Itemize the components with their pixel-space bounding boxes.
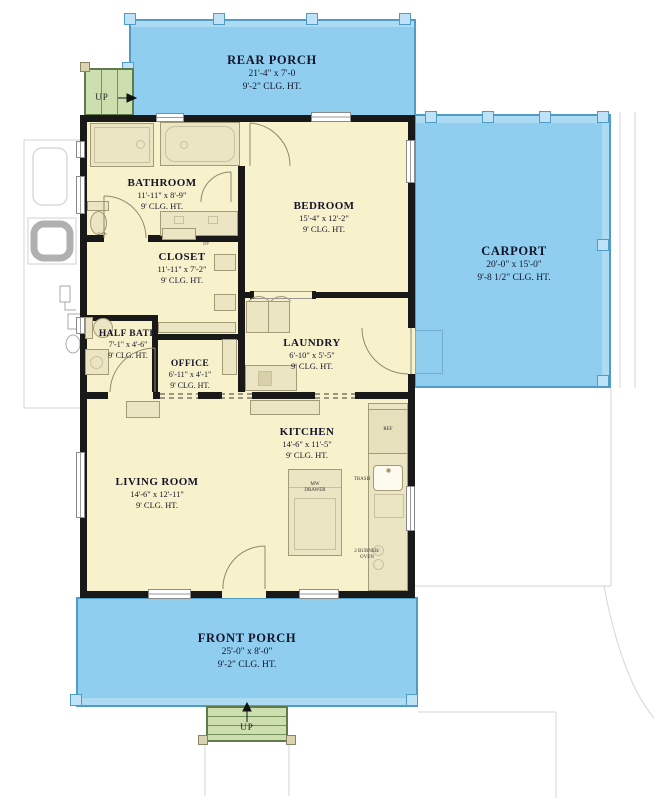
room-dims: 20'-0" x 15'-0" [477, 259, 550, 271]
office-desk [222, 339, 237, 375]
carport-post [425, 111, 437, 123]
window [156, 113, 184, 122]
window [76, 452, 85, 518]
room-name: BATHROOM [128, 176, 197, 190]
rear-stairs-post [80, 62, 90, 72]
faucet [386, 468, 391, 473]
trash-label: TRASH [345, 477, 379, 483]
room-clg: 9' CLG. HT. [283, 361, 340, 372]
room-label-kitchen: KITCHEN 14'-6" x 11'-5" 9' CLG. HT. [280, 425, 335, 461]
room-label-bedroom: BEDROOM 15'-4" x 12'-2" 9' CLG. HT. [294, 199, 355, 235]
mw-line2: DRAWER [290, 488, 340, 494]
porch-post [70, 694, 82, 706]
lumber-label: 2 x 6 [88, 231, 116, 236]
carport-beam-right [602, 116, 609, 386]
room-dims: 25'-0" x 8'-0" [198, 646, 296, 658]
wall-segment [355, 392, 408, 399]
room-clg: 9'-8 1/2" CLG. HT. [477, 272, 550, 284]
closet-shelf [158, 322, 236, 333]
room-name: LAUNDRY [283, 336, 340, 350]
room-name: REAR PORCH [227, 52, 317, 68]
front-stairs-post [286, 735, 296, 745]
wall-segment [87, 392, 108, 399]
opening-jamb [250, 291, 254, 299]
room-dims: 21'-4" x 7'-0 [227, 68, 317, 80]
room-name: KITCHEN [280, 425, 335, 439]
half-bath-door-opening [108, 392, 153, 399]
carport-beam-top [416, 116, 609, 123]
toilet-tank [85, 317, 93, 339]
room-clg: 9'-2" CLG. HT. [227, 81, 317, 93]
room-label-half-bath: HALF BATH 7'-1" x 4'-6" 9' CLG. HT. [99, 328, 157, 361]
wall-segment [153, 392, 160, 399]
room-label-bathroom: BATHROOM 11'-11" x 8'-9" 9' CLG. HT. [128, 176, 197, 212]
wall-segment [238, 166, 245, 392]
burner-oven-label: 2 BURNER/ OVEN [343, 549, 391, 561]
room-dims: 6'-10" x 5'-5" [283, 350, 340, 361]
wall-segment [252, 392, 315, 399]
room-label-office: OFFICE 6'-11" x 4'-1" 9' CLG. HT. [169, 358, 211, 391]
porch-post [124, 13, 136, 25]
dp-label: DP [198, 241, 214, 246]
cased-opening [252, 291, 316, 299]
mw-drawer-label: MW DRAWER [290, 482, 340, 494]
carport-post [597, 239, 609, 251]
window [311, 112, 351, 122]
room-label-laundry: LAUNDRY 6'-10" x 5'-5" 9' CLG. HT. [283, 336, 340, 372]
carport-post [597, 111, 609, 123]
porch-post [399, 13, 411, 25]
window [406, 140, 415, 183]
carport-post [539, 111, 551, 123]
room-label-front-porch: FRONT PORCH 25'-0" x 8'-0" 9'-2" CLG. HT… [198, 630, 296, 671]
closet-shelf [214, 254, 236, 271]
side-door-opening [408, 328, 415, 374]
front-stairs-post [198, 735, 208, 745]
carport-post [597, 375, 609, 387]
room-name: LIVING ROOM [116, 475, 199, 489]
wall-segment [316, 292, 408, 298]
room-clg: 9' CLG. HT. [99, 351, 157, 361]
closet-shelf [214, 294, 236, 311]
room-clg: 9' CLG. HT. [294, 224, 355, 235]
ref-label: REF [368, 427, 408, 433]
dishwasher [374, 494, 404, 518]
room-clg: 9'-2" CLG. HT. [198, 659, 296, 671]
room-dims: 7'-1" x 4'-6" [99, 340, 157, 350]
bathtub-inner [165, 126, 235, 162]
shower-drain [136, 140, 145, 149]
sink [174, 216, 184, 224]
carport-post [482, 111, 494, 123]
room-label-rear-porch: REAR PORCH 21'-4" x 7'-0 9'-2" CLG. HT. [227, 52, 317, 93]
front-door-opening [222, 591, 266, 598]
closet-cabinet [162, 228, 196, 240]
room-label-carport: CARPORT 20'-0" x 15'-0" 9'-8 1/2" CLG. H… [477, 243, 550, 284]
room-dims: 15'-4" x 12'-2" [294, 213, 355, 224]
toilet-tank [87, 201, 109, 211]
room-dims: 6'-11" x 4'-1" [169, 370, 211, 380]
front-porch-beam [78, 698, 416, 705]
kitchen-counter-top [250, 400, 320, 415]
room-dims: 14'-6" x 12'-11" [116, 489, 199, 500]
porch-post [406, 694, 418, 706]
room-name: BEDROOM [294, 199, 355, 213]
window [76, 141, 85, 158]
window [148, 589, 191, 599]
room-dims: 11'-11" x 8'-9" [128, 190, 197, 201]
room-clg: 9' CLG. HT. [157, 275, 206, 286]
room-clg: 9' CLG. HT. [169, 381, 211, 391]
room-clg: 9' CLG. HT. [280, 450, 335, 461]
porch-post [213, 13, 225, 25]
laundry-bench-inner [258, 371, 272, 386]
bathtub-drain [180, 141, 188, 149]
room-dims: 14'-6" x 11'-5" [280, 439, 335, 450]
window [76, 317, 85, 334]
opening-jamb [312, 291, 316, 299]
washer-dryer-divider [268, 301, 269, 333]
island-inner [294, 498, 336, 550]
wall-segment [198, 392, 222, 399]
sink [208, 216, 218, 224]
window [76, 176, 85, 214]
front-stairs-up-label: UP [233, 722, 261, 732]
floor-plan-canvas: REAR PORCH 21'-4" x 7'-0 9'-2" CLG. HT. … [0, 0, 672, 800]
porch-post [306, 13, 318, 25]
room-clg: 9' CLG. HT. [128, 201, 197, 212]
carport-entry-stoop [415, 330, 443, 374]
window [406, 486, 415, 531]
room-dims: 11'-11" x 7'-2" [157, 264, 206, 275]
room-label-closet: CLOSET 11'-11" x 7'-2" 9' CLG. HT. [157, 250, 206, 286]
living-cabinet [126, 401, 160, 418]
room-name: CARPORT [477, 243, 550, 259]
room-name: CLOSET [157, 250, 206, 264]
room-clg: 9' CLG. HT. [116, 500, 199, 511]
burner-line2: OVEN [343, 555, 391, 561]
room-name: OFFICE [169, 358, 211, 370]
room-label-living-room: LIVING ROOM 14'-6" x 12'-11" 9' CLG. HT. [116, 475, 199, 511]
rear-stairs-up-label: UP [88, 92, 116, 102]
room-name: FRONT PORCH [198, 630, 296, 646]
rear-porch-beam [131, 21, 414, 27]
room-name: HALF BATH [99, 328, 157, 340]
window [299, 589, 339, 599]
